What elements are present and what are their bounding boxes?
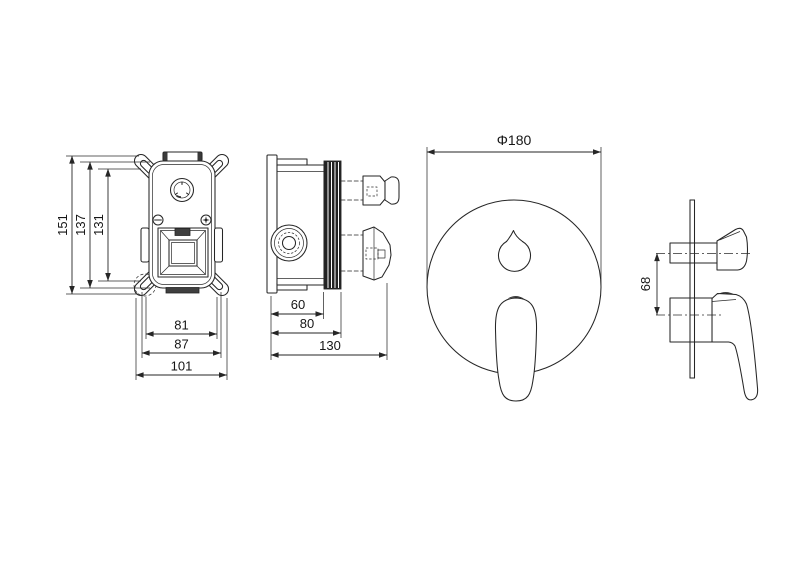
valve-side-body [277,165,324,285]
wall-flange [267,155,277,293]
cartridge-recess [158,228,208,277]
valve-front-vertical-dimensions: 151 137 131 [55,156,150,294]
valve-side-dimensions: 60 80 130 [271,283,387,360]
dim-handle-spacing-label: 68 [638,277,653,291]
lever-handle-side [670,292,758,400]
dim-overall-height-label: 151 [55,214,70,236]
dim-body-width-label: 87 [174,337,188,352]
diverter-knob-side [670,228,748,270]
dim-overall-depth-label: 130 [319,338,341,353]
dim-overall-width-label: 101 [171,359,193,374]
bottom-strip [166,288,199,294]
wall-plate-side [690,200,695,378]
recess-notch [175,229,190,236]
valve-front-horizontal-dimensions: 81 87 101 [136,292,227,380]
dim-body-height-label: 137 [73,214,88,236]
diverter-spindle [171,179,194,202]
dim-mounting-height-label: 131 [91,214,106,236]
handle-hub-side [341,227,391,280]
inlet-connection [271,225,307,261]
valve-front-view: 151 137 131 81 87 101 [55,152,231,380]
dim-depth-front-label: 60 [291,297,305,312]
screw-left [153,215,163,225]
dim-inner-width-label: 81 [174,318,188,333]
technical-drawing-canvas: 151 137 131 81 87 101 [0,0,800,566]
dim-depth-mid-label: 80 [300,316,314,331]
trim-side-view: 68 [638,200,758,400]
top-strip [163,152,202,161]
technical-drawing: 151 137 131 81 87 101 [0,0,800,566]
handle-spacing-dimension: 68 [638,254,657,316]
trim-front-view: Φ180 [427,132,601,401]
side-tab-left [141,228,149,262]
screw-right [201,215,211,225]
side-tab-right [215,228,223,262]
dim-plate-diameter-label: Φ180 [497,132,532,148]
thread-rib-band [324,161,341,289]
diverter-stem-side [341,176,399,205]
valve-side-view: 60 80 130 [267,155,399,360]
lever-handle-front [495,296,536,401]
